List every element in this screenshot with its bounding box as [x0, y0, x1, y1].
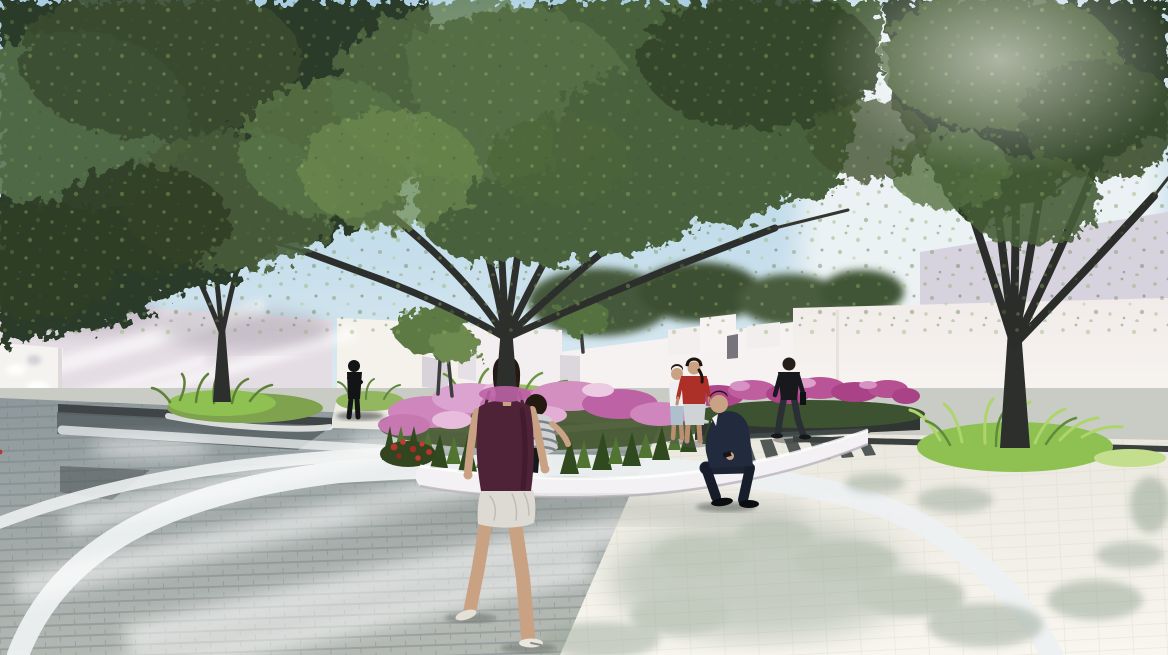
rendering-canvas	[0, 0, 1168, 655]
shorts	[478, 490, 536, 528]
flowers-over-trunk	[479, 386, 531, 402]
wall-opening-notch	[727, 334, 738, 359]
tree-canopy	[0, 0, 1168, 350]
